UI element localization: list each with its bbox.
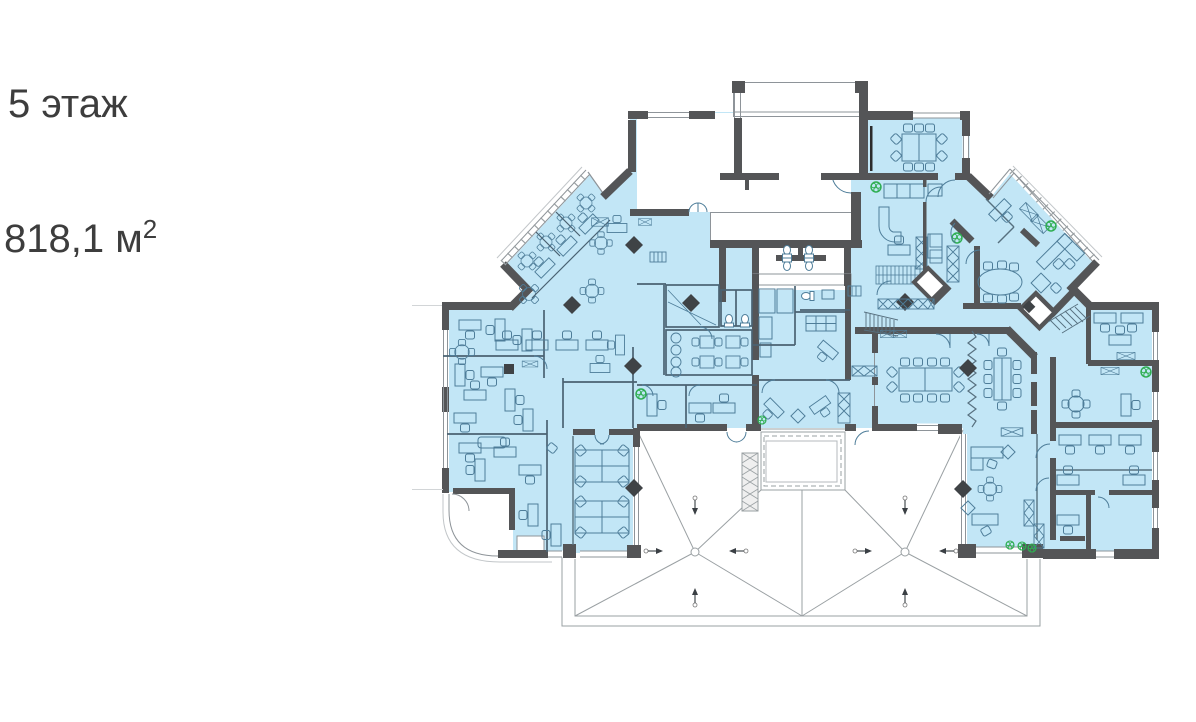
svg-text:5 этаж: 5 этаж <box>8 82 128 126</box>
svg-text:818,1 м2: 818,1 м2 <box>4 214 157 261</box>
